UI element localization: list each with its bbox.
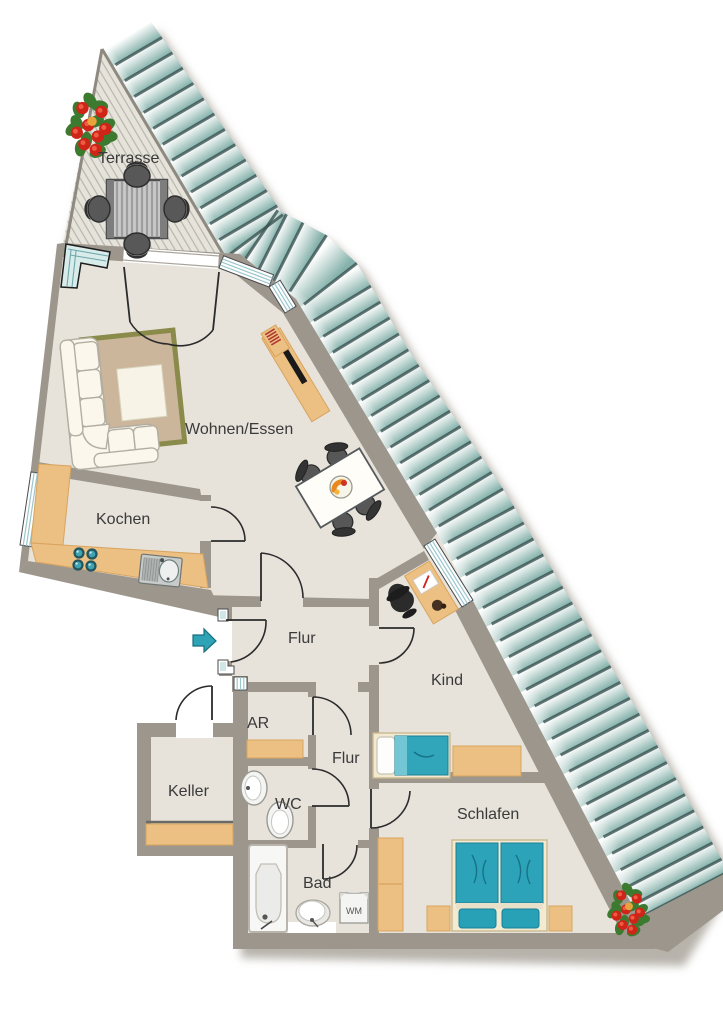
svg-text:Keller: Keller: [168, 783, 210, 800]
svg-text:Bad: Bad: [303, 875, 331, 892]
svg-text:WM: WM: [346, 906, 362, 916]
svg-text:Flur: Flur: [332, 750, 360, 767]
svg-text:Kind: Kind: [431, 672, 463, 689]
svg-text:Flur: Flur: [288, 630, 316, 647]
svg-text:Terrasse: Terrasse: [98, 150, 159, 167]
svg-text:AR: AR: [247, 715, 269, 732]
svg-text:Schlafen: Schlafen: [457, 806, 519, 823]
svg-text:Kochen: Kochen: [96, 511, 150, 528]
svg-text:WC: WC: [275, 796, 302, 813]
svg-text:Wohnen/Essen: Wohnen/Essen: [185, 421, 293, 438]
